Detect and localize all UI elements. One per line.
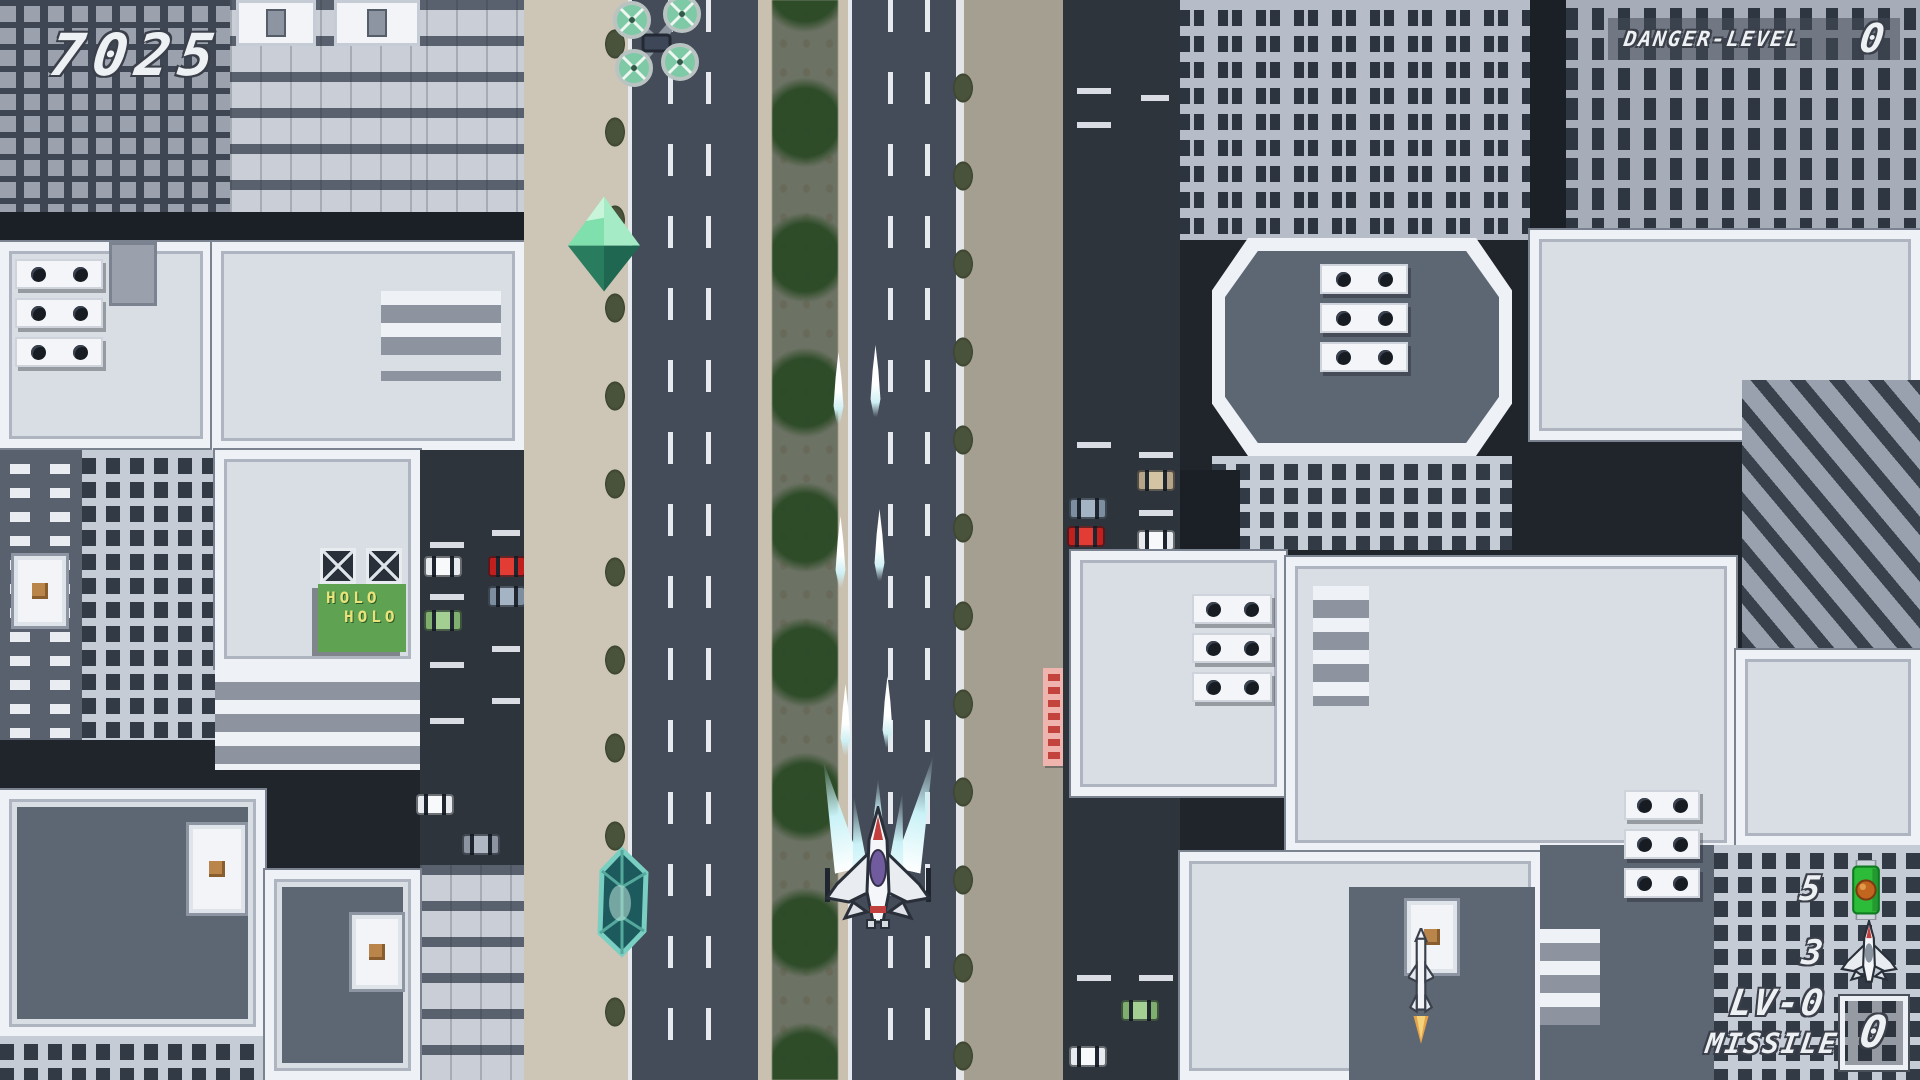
billboard-x-panel bbox=[366, 548, 402, 584]
billboard-x-panel bbox=[320, 548, 356, 584]
car-red bbox=[488, 556, 526, 577]
green-gem bbox=[563, 193, 645, 295]
car-tan bbox=[1137, 470, 1175, 491]
car-red bbox=[1067, 526, 1105, 547]
parking-mark bbox=[492, 646, 520, 652]
building-facade-ledges bbox=[215, 668, 420, 770]
lane-dash bbox=[706, 0, 711, 1080]
car-white bbox=[1069, 1046, 1107, 1067]
ac-vent-cluster bbox=[1192, 594, 1272, 711]
roof-access-unit bbox=[334, 0, 420, 46]
parking-mark bbox=[1077, 88, 1111, 94]
car-green bbox=[424, 610, 462, 631]
enemy-drone bbox=[606, 0, 706, 90]
roof-access-box bbox=[352, 915, 402, 989]
rooftop bbox=[1071, 551, 1286, 796]
battery-icon bbox=[1850, 860, 1882, 920]
alley bbox=[1530, 0, 1566, 232]
building-facade-windows bbox=[82, 450, 215, 740]
lane-dash bbox=[668, 0, 673, 1080]
roof-detail bbox=[1540, 929, 1600, 1025]
bush-row-right bbox=[948, 44, 978, 1080]
parking-mark bbox=[1077, 122, 1111, 128]
parking-mark bbox=[430, 718, 464, 724]
ac-vent-cluster bbox=[15, 259, 103, 376]
building-facade-diagonal bbox=[1742, 380, 1920, 650]
parking-mark bbox=[430, 662, 464, 668]
rooftop bbox=[212, 242, 524, 450]
weapon-level-label: LV-0 bbox=[1727, 986, 1827, 1022]
missile-label: MISSILE bbox=[1704, 1030, 1840, 1058]
parking-mark bbox=[1077, 975, 1111, 981]
player-ship-sprite bbox=[823, 806, 933, 930]
missile-count-box: 0 bbox=[1840, 996, 1908, 1070]
alley bbox=[1180, 470, 1240, 555]
building-facade-bands bbox=[426, 0, 524, 212]
alley bbox=[0, 212, 524, 242]
rooftop bbox=[1736, 650, 1920, 845]
parking-mark bbox=[430, 594, 464, 600]
hud-score: 7025 bbox=[46, 26, 226, 84]
parking-alley bbox=[1063, 0, 1180, 1080]
octagon-rooftop bbox=[1212, 238, 1512, 456]
car-white bbox=[416, 794, 454, 815]
ac-vent-cluster bbox=[1624, 790, 1700, 907]
roof-detail bbox=[1313, 586, 1369, 706]
rooftop bbox=[265, 870, 420, 1080]
sidewalk-right bbox=[964, 0, 1063, 1080]
roof-access-box bbox=[14, 556, 66, 626]
parking-mark bbox=[1077, 442, 1111, 448]
parking-lot bbox=[420, 450, 524, 865]
vent-shaft bbox=[109, 242, 157, 306]
danger-bar: DANGER-LEVEL 0 bbox=[1608, 18, 1900, 60]
powerup-count-top: 5 bbox=[1798, 872, 1825, 906]
player-ship bbox=[818, 738, 938, 930]
building-facade-windows bbox=[1212, 456, 1512, 550]
car-white bbox=[1137, 530, 1175, 551]
parking-mark bbox=[492, 530, 520, 536]
car-gray bbox=[488, 586, 526, 607]
parking-mark bbox=[1139, 975, 1173, 981]
holo-billboard: HOLO HOLO bbox=[318, 584, 406, 652]
car-white bbox=[424, 556, 462, 577]
teal-crystal bbox=[592, 846, 652, 958]
roof-access-box bbox=[189, 825, 245, 913]
powerup-count-bottom: 3 bbox=[1800, 936, 1827, 970]
missile-count-value: 0 bbox=[1857, 1011, 1892, 1055]
building-facade-windows bbox=[0, 1036, 265, 1080]
ship-lives-icon bbox=[1838, 920, 1900, 986]
missile-projectile bbox=[1408, 928, 1434, 1046]
car-green bbox=[1121, 1000, 1159, 1021]
game-stage[interactable]: HOLO HOLO bbox=[0, 0, 1920, 1080]
rooftop bbox=[0, 790, 265, 1036]
ac-vent-cluster bbox=[1320, 264, 1408, 381]
rooftop bbox=[0, 242, 212, 448]
building-facade-window-pairs bbox=[1180, 0, 1530, 240]
parking-mark bbox=[430, 542, 464, 548]
billboard-line2: HOLO bbox=[344, 607, 406, 626]
roof-detail bbox=[381, 291, 501, 355]
parking-mark bbox=[1139, 452, 1173, 458]
danger-label: DANGER-LEVEL bbox=[1623, 29, 1862, 50]
building-facade-bands bbox=[420, 865, 524, 1080]
danger-value: 0 bbox=[1857, 19, 1889, 59]
car-gray bbox=[462, 834, 500, 855]
parking-mark bbox=[492, 698, 520, 704]
roof-access-unit bbox=[236, 0, 316, 46]
rooftop bbox=[1180, 852, 1540, 1080]
roof-detail bbox=[381, 371, 501, 381]
parking-mark bbox=[1139, 510, 1173, 516]
parking-mark bbox=[1141, 95, 1169, 101]
car-gray bbox=[1069, 498, 1107, 519]
billboard-line1: HOLO bbox=[326, 588, 406, 607]
